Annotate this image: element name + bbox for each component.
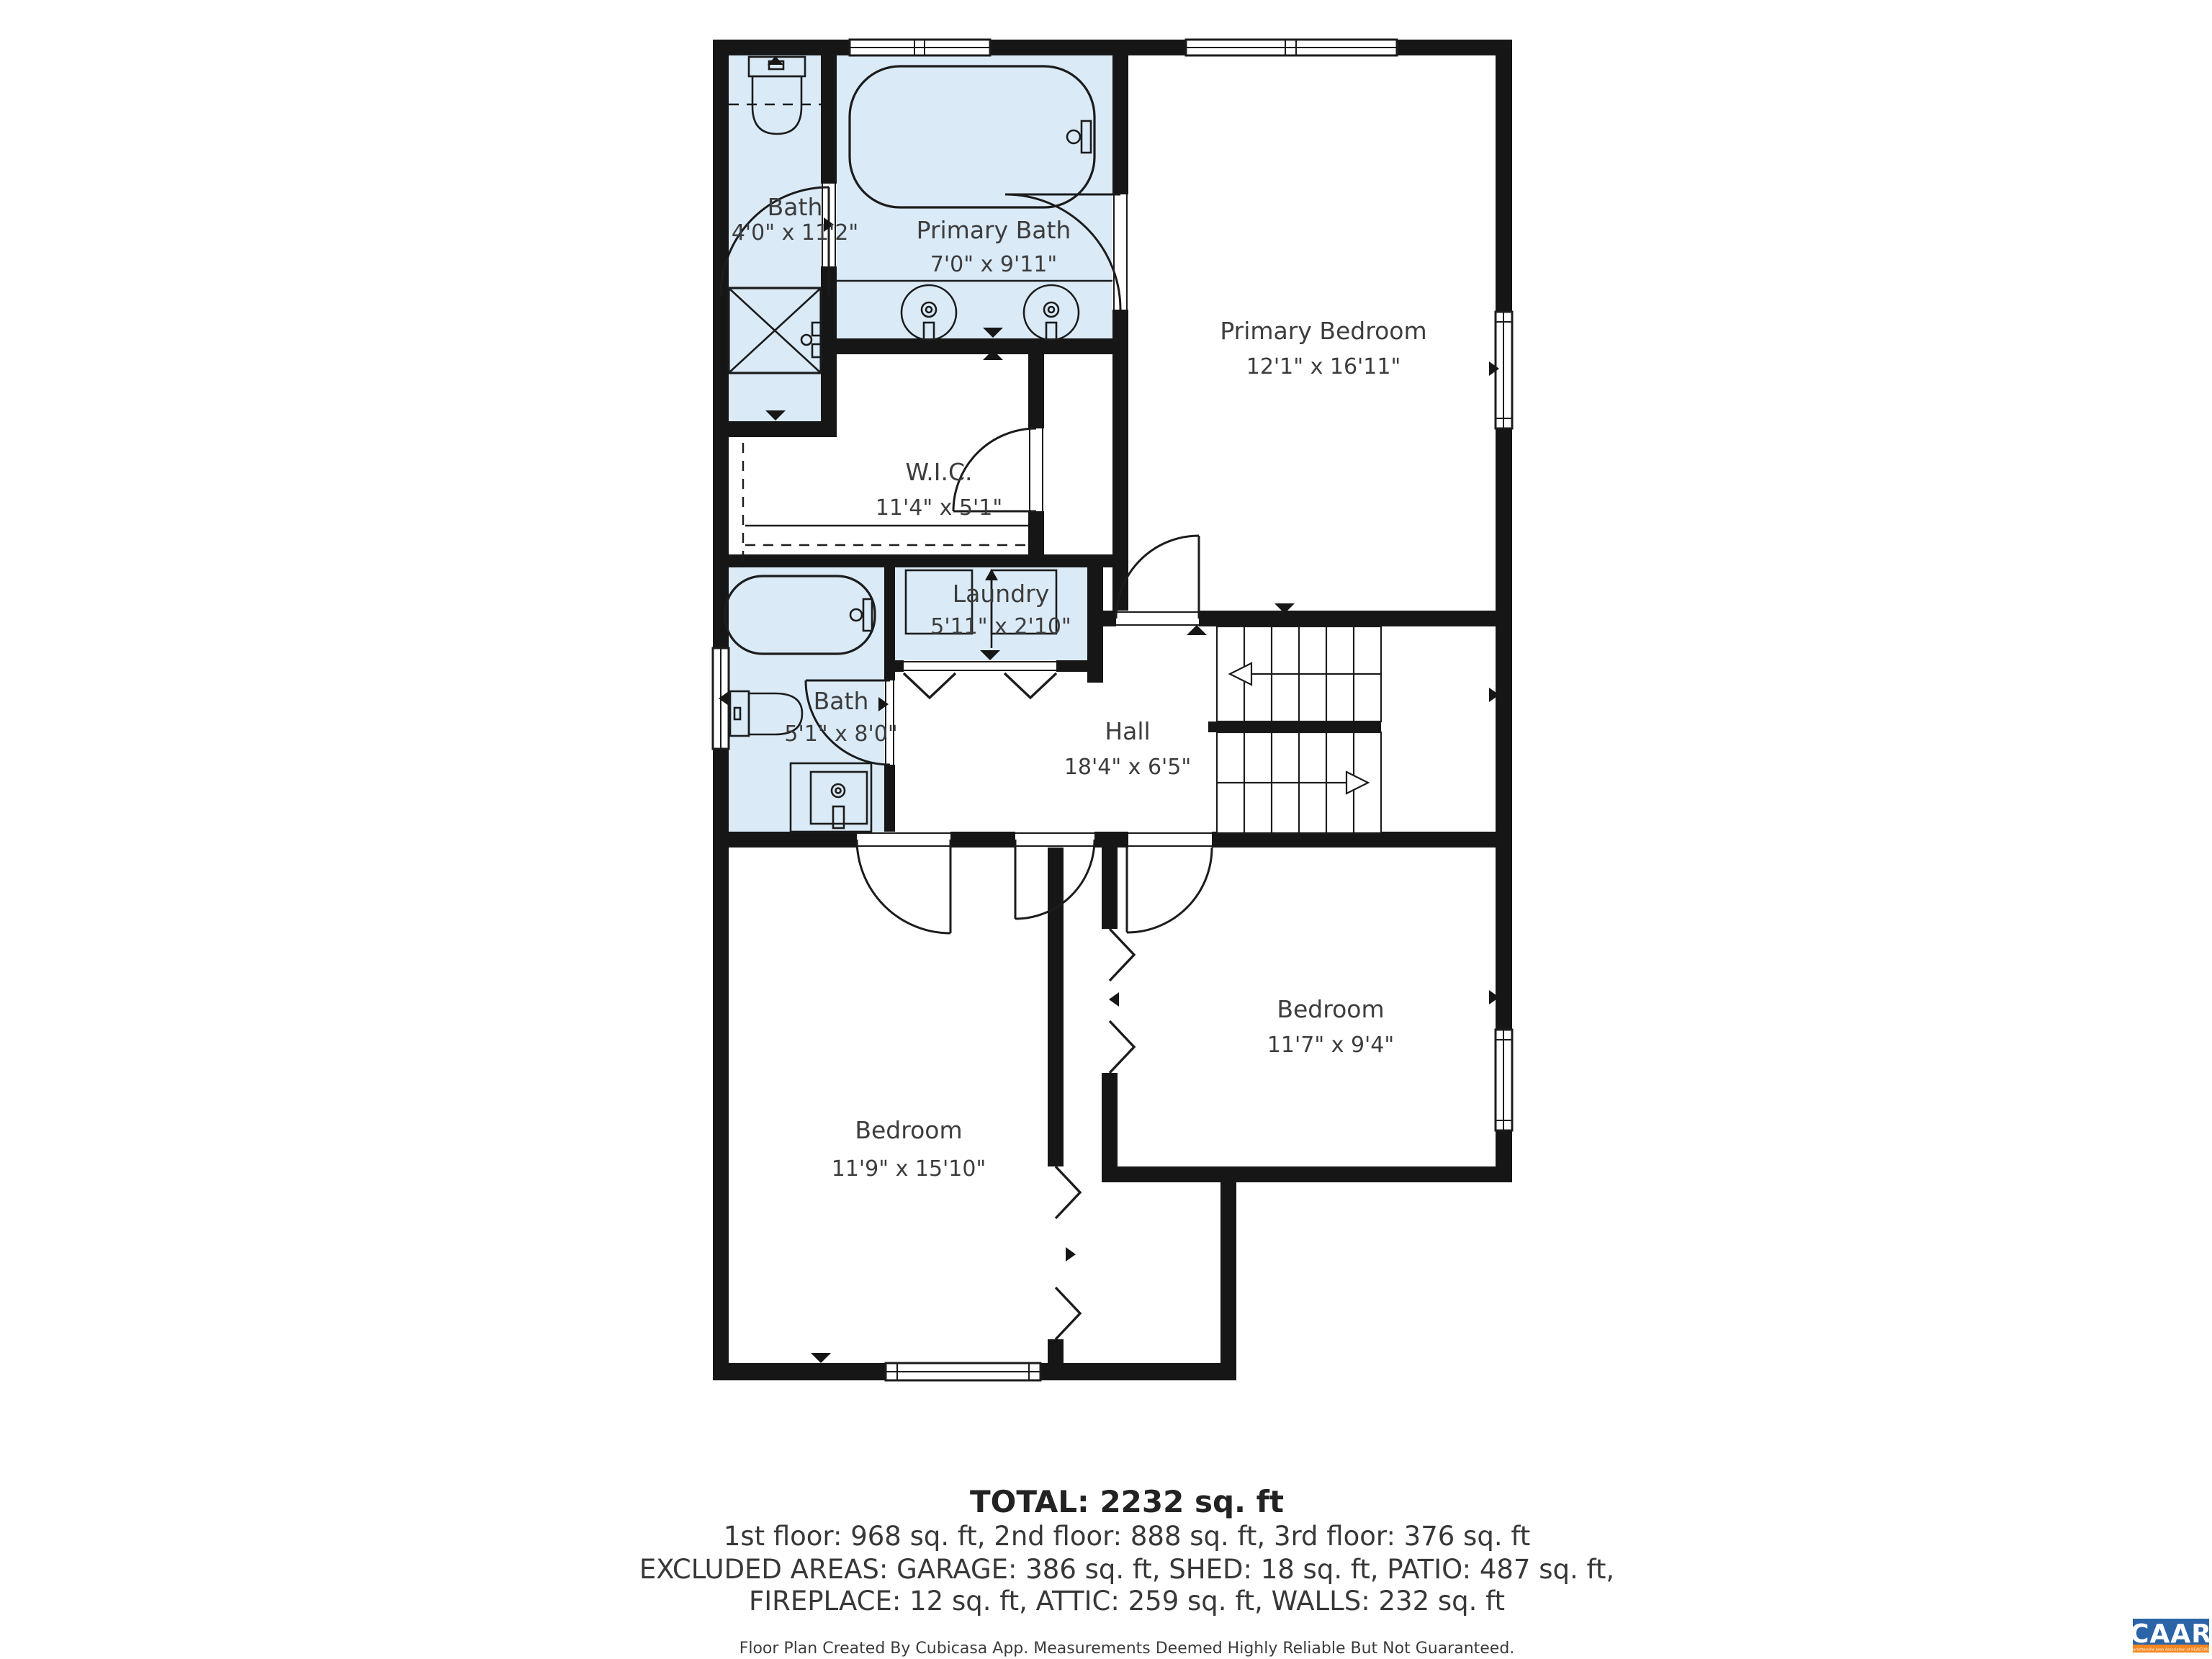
- wall-wic-right-b: [1028, 511, 1044, 554]
- wall-stairs-divider: [1208, 721, 1381, 732]
- wall-hall-bottom-d: [1212, 832, 1512, 848]
- caar-logo-subtitle: Charlottesville Area Association of REAL…: [2128, 1647, 2212, 1653]
- wall-bath1-right-a: [821, 55, 837, 184]
- wall-pbath-pbed-b: [1112, 310, 1128, 611]
- wall-bedright-left-a: [1102, 848, 1118, 929]
- room-dims-bath-2: 5'1" x 8'0": [784, 721, 897, 747]
- opening-wic: [1028, 428, 1044, 511]
- bifold-doors-laundry: [904, 673, 1056, 698]
- wall-break-symbols: [1056, 929, 1134, 1339]
- wall-bedroom-right-bottom: [1102, 1166, 1512, 1182]
- break-arrow-icon: [1066, 1247, 1076, 1262]
- room-dims-laundry: 5'11" x 2'10": [930, 614, 1071, 639]
- opening-primary-bedroom: [1116, 611, 1199, 626]
- room-dims-primary-bath: 7'0" x 9'11": [930, 252, 1057, 277]
- room-label-wic: W.I.C.: [905, 458, 972, 486]
- room-dims-primary-bedroom: 12'1" x 16'11": [1246, 354, 1401, 379]
- break-arrow-icon: [1109, 992, 1119, 1007]
- room-fills: [729, 55, 1112, 832]
- stairs-upper-flight: [1217, 626, 1381, 721]
- window-bedroom-right: [1496, 1030, 1512, 1130]
- opening-primary-bath: [1112, 194, 1128, 310]
- opening-laundry: [904, 660, 1056, 672]
- room-dims-bedroom-left: 11'9" x 15'10": [832, 1156, 986, 1182]
- wall-pbath-pbed-a: [1112, 55, 1128, 194]
- room-dims-hall: 18'4" x 6'5": [1064, 755, 1191, 780]
- room-dims-bath-1: 4'0" x 11'2": [732, 220, 858, 246]
- room-label-primary-bath: Primary Bath: [917, 216, 1071, 244]
- summary-excluded-2: FIREPLACE: 12 sq. ft, ATTIC: 259 sq. ft,…: [749, 1586, 1505, 1617]
- summary-floors: 1st floor: 968 sq. ft, 2nd floor: 888 sq…: [724, 1521, 1530, 1552]
- room-label-hall: Hall: [1105, 717, 1150, 745]
- door-bedroom-right: [1127, 848, 1212, 932]
- wall-bath2-right-b: [884, 765, 895, 832]
- wall-hall-bottom-b: [950, 832, 1015, 848]
- footer-disclaimer: Floor Plan Created By Cubicasa App. Meas…: [739, 1640, 1515, 1658]
- caar-logo-title: CAAR: [2130, 1619, 2212, 1649]
- room-label-bath-2: Bath: [814, 687, 869, 715]
- room-label-bath-1: Bath: [768, 193, 823, 221]
- wall-wic-right-a: [1028, 354, 1044, 428]
- room-primary-bath: [837, 55, 1112, 338]
- door-bedroom-left: [857, 840, 950, 933]
- wall-pbed-bottom-a: [1103, 611, 1116, 626]
- wall-hall-bottom-c: [1094, 832, 1128, 848]
- wall-nook-right: [1220, 1182, 1236, 1363]
- summary-excluded-1: EXCLUDED AREAS: GARAGE: 386 sq. ft, SHED…: [639, 1554, 1614, 1585]
- window-primary-bedroom-right: [1496, 312, 1512, 428]
- wall-bath1-bottom: [713, 421, 837, 437]
- caar-logo: CAAR Charlottesville Area Association of…: [2128, 1619, 2212, 1653]
- wall-pbed-bottom-b: [1199, 611, 1512, 626]
- room-label-bedroom-right: Bedroom: [1277, 995, 1384, 1023]
- room-label-primary-bedroom: Primary Bedroom: [1220, 317, 1426, 345]
- opening-bedroom-left: [857, 832, 950, 848]
- wall-bedleft-right-b: [1048, 1339, 1064, 1363]
- opening-closet: [1015, 832, 1094, 848]
- wall-laundry-bottom-b: [1056, 660, 1103, 672]
- window-primary-bedroom-top: [1186, 40, 1397, 55]
- wall-bedleft-right-a: [1048, 848, 1064, 1166]
- summary-block: TOTAL: 2232 sq. ft 1st floor: 968 sq. ft…: [639, 1484, 1614, 1658]
- room-dims-wic: 11'4" x 5'1": [876, 495, 1002, 521]
- wall-bedright-left-b: [1102, 1073, 1118, 1182]
- room-label-laundry: Laundry: [953, 580, 1049, 608]
- window-bedroom-left-bottom: [886, 1363, 1040, 1380]
- floor-plan-page: Bath 4'0" x 11'2" Primary Bath 7'0" x 9'…: [0, 0, 2212, 1659]
- room-dims-bedroom-right: 11'7" x 9'4": [1267, 1033, 1394, 1058]
- summary-total: TOTAL: 2232 sq. ft: [970, 1484, 1284, 1519]
- wall-hall-bottom-a: [713, 832, 857, 848]
- window-primary-bath-top: [850, 40, 990, 55]
- door-primary-bedroom: [1116, 536, 1199, 619]
- opening-bedroom-right: [1128, 832, 1212, 848]
- wall-wic-bottom: [713, 554, 1112, 567]
- stairs-lower-flight: [1217, 732, 1381, 833]
- room-label-bedroom-left: Bedroom: [855, 1116, 962, 1144]
- wall-pbath-bottom: [837, 338, 1112, 354]
- wall-laundry-bottom-a: [884, 660, 904, 672]
